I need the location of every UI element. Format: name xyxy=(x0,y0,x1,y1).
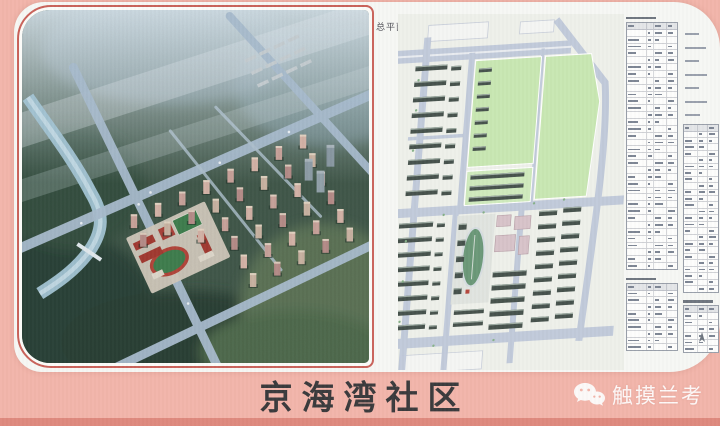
table-cell xyxy=(684,346,698,352)
table-cell xyxy=(627,304,647,310)
table-cell xyxy=(647,160,654,166)
table-cell xyxy=(684,190,698,195)
table-cell xyxy=(654,256,667,262)
table-row xyxy=(627,194,677,201)
table-cell xyxy=(654,181,667,187)
table-cell xyxy=(708,202,718,207)
table-cell xyxy=(627,30,647,36)
table-cell xyxy=(667,71,677,77)
table-row xyxy=(627,331,677,338)
table-cell xyxy=(654,236,667,242)
table-row xyxy=(627,201,677,208)
table-cell xyxy=(684,151,698,156)
table-row xyxy=(627,304,677,311)
table-cell xyxy=(654,331,667,337)
table-row xyxy=(627,78,677,85)
table-cell xyxy=(627,284,647,290)
watermark: 触摸兰考 xyxy=(573,380,704,410)
table-cell xyxy=(627,57,647,63)
table-row xyxy=(627,57,677,64)
table-cell xyxy=(698,346,708,352)
table-cell xyxy=(708,151,718,156)
table-row xyxy=(627,105,677,112)
table-cell xyxy=(647,263,654,269)
table-cell xyxy=(698,157,708,162)
table-cell xyxy=(708,254,718,259)
table-cell xyxy=(708,247,718,252)
table-cell xyxy=(667,215,677,221)
table-cell xyxy=(667,331,677,337)
table-row xyxy=(627,311,677,318)
table-cell xyxy=(684,273,698,278)
table-cell xyxy=(627,181,647,187)
table-cell xyxy=(667,167,677,173)
table-cell xyxy=(647,126,654,132)
table-cell xyxy=(627,194,647,200)
table-cell xyxy=(698,222,708,227)
table-cell xyxy=(684,157,698,162)
planning-board-photo: 总平面图 xyxy=(0,0,720,426)
table-cell xyxy=(627,243,647,249)
table-cell xyxy=(667,140,677,146)
table-row xyxy=(627,318,677,325)
table-caption xyxy=(626,275,678,283)
table-cell xyxy=(684,306,698,312)
table-cell xyxy=(667,188,677,194)
table-cell xyxy=(654,222,667,228)
table-cell xyxy=(647,50,654,56)
table-cell xyxy=(647,64,654,70)
indicator-tables xyxy=(626,14,720,358)
table-row xyxy=(627,291,677,298)
table-row xyxy=(627,256,677,263)
table-cell xyxy=(654,44,667,50)
indicator-table xyxy=(683,124,719,292)
table-cell xyxy=(667,57,677,63)
table-row xyxy=(627,92,677,99)
table-cell xyxy=(684,333,698,339)
table-row xyxy=(627,146,677,153)
table-cell xyxy=(654,140,667,146)
table-cell xyxy=(684,286,698,291)
table-cell xyxy=(627,318,647,324)
table-row xyxy=(627,284,677,291)
table-cell xyxy=(667,174,677,180)
table-cell xyxy=(708,183,718,188)
table-row xyxy=(627,188,677,195)
table-cell xyxy=(684,228,698,233)
table-cell xyxy=(684,170,698,175)
table-cell xyxy=(667,181,677,187)
table-cell xyxy=(647,344,654,350)
table-cell xyxy=(708,320,718,326)
table-row xyxy=(684,346,718,352)
table-cell xyxy=(667,44,677,50)
table-cell xyxy=(667,229,677,235)
table-cell xyxy=(654,201,667,207)
table-row xyxy=(627,167,677,174)
table-cell xyxy=(667,112,677,118)
table-cell xyxy=(667,153,677,159)
table-cell xyxy=(708,132,718,137)
table-cell xyxy=(708,313,718,319)
table-caption xyxy=(626,14,678,22)
table-cell xyxy=(647,181,654,187)
table-cell xyxy=(647,71,654,77)
table-cell xyxy=(667,133,677,139)
table-cell xyxy=(698,209,708,214)
table-cell xyxy=(654,318,667,324)
table-row xyxy=(627,160,677,167)
table-cell xyxy=(647,243,654,249)
table-cell xyxy=(647,119,654,125)
table-cell xyxy=(647,256,654,262)
table-cell xyxy=(654,338,667,344)
table-cell xyxy=(667,208,677,214)
table-cell xyxy=(654,146,667,152)
table-cell xyxy=(627,208,647,214)
table-row xyxy=(684,313,718,320)
table-row xyxy=(627,174,677,181)
table-cell xyxy=(667,243,677,249)
table-cell xyxy=(627,344,647,350)
table-cell xyxy=(627,119,647,125)
aerial-rendering xyxy=(22,10,369,363)
table-cell xyxy=(647,167,654,173)
table-caption xyxy=(683,298,719,306)
table-cell xyxy=(627,188,647,194)
table-cell xyxy=(684,209,698,214)
table-cell xyxy=(684,177,698,182)
aerial-panel xyxy=(17,5,374,368)
table-row xyxy=(627,71,677,78)
table-cell xyxy=(647,229,654,235)
table-row xyxy=(627,324,677,331)
table-cell xyxy=(667,64,677,70)
table-cell xyxy=(684,267,698,272)
table-cell xyxy=(684,144,698,149)
table-cell xyxy=(708,333,718,339)
table-cell xyxy=(627,222,647,228)
table-cell xyxy=(708,170,718,175)
table-cell xyxy=(654,263,667,269)
table-cell xyxy=(698,241,708,246)
table-cell xyxy=(654,249,667,255)
table-cell xyxy=(708,209,718,214)
table-cell xyxy=(647,236,654,242)
table-cell xyxy=(684,254,698,259)
table-cell xyxy=(698,273,708,278)
table-cell xyxy=(698,196,708,201)
footer: 京海湾社区 触摸兰考 xyxy=(0,372,720,418)
table-cell xyxy=(667,344,677,350)
table-cell xyxy=(708,340,718,346)
table-cell xyxy=(698,254,708,259)
table-row xyxy=(627,112,677,119)
table-cell xyxy=(647,304,654,310)
table-row xyxy=(627,119,677,126)
table-cell xyxy=(684,320,698,326)
table-cell xyxy=(654,98,667,104)
table-cell xyxy=(684,260,698,265)
table-cell xyxy=(667,105,677,111)
table-cell xyxy=(627,167,647,173)
table-cell xyxy=(667,236,677,242)
table-cell xyxy=(654,291,667,297)
table-cell xyxy=(627,324,647,330)
table-cell xyxy=(698,177,708,182)
table-cell xyxy=(654,284,667,290)
table-cell xyxy=(698,190,708,195)
table-cell xyxy=(647,140,654,146)
community-title: 京海湾社区 xyxy=(251,371,470,419)
table-cell xyxy=(647,249,654,255)
table-cell xyxy=(667,78,677,84)
table-cell xyxy=(654,194,667,200)
table-cell xyxy=(647,112,654,118)
table-cell xyxy=(627,140,647,146)
legend-notes xyxy=(683,30,719,124)
table-cell xyxy=(654,344,667,350)
table-cell xyxy=(708,286,718,291)
table-cell xyxy=(684,138,698,143)
table-cell xyxy=(627,291,647,297)
display-board: 总平面图 xyxy=(14,2,720,372)
table-cell xyxy=(708,260,718,265)
table-cell xyxy=(698,170,708,175)
table-cell xyxy=(667,92,677,98)
table-cell xyxy=(647,57,654,63)
table-cell xyxy=(698,132,708,137)
table-cell xyxy=(698,228,708,233)
table-cell xyxy=(684,125,698,130)
table-cell xyxy=(654,78,667,84)
table-cell xyxy=(627,133,647,139)
table-cell xyxy=(647,201,654,207)
table-cell xyxy=(654,324,667,330)
table-cell xyxy=(627,37,647,43)
table-cell xyxy=(647,188,654,194)
table-row xyxy=(627,98,677,105)
table-cell xyxy=(698,138,708,143)
table-cell xyxy=(708,267,718,272)
table-cell xyxy=(647,133,654,139)
table-cell xyxy=(647,174,654,180)
table-cell xyxy=(654,208,667,214)
table-row xyxy=(627,181,677,188)
table-cell xyxy=(647,30,654,36)
table-cell xyxy=(667,85,677,91)
table-cell xyxy=(684,215,698,220)
table-cell xyxy=(684,222,698,227)
table-cell xyxy=(708,164,718,169)
table-cell xyxy=(654,133,667,139)
table-cell xyxy=(708,196,718,201)
table-row xyxy=(627,64,677,71)
table-cell xyxy=(647,297,654,303)
photo-bottom-edge xyxy=(0,418,720,426)
table-row xyxy=(627,338,677,345)
indicator-table xyxy=(626,283,678,351)
table-row xyxy=(627,133,677,140)
table-cell xyxy=(647,318,654,324)
table-cell xyxy=(627,338,647,344)
table-cell xyxy=(647,105,654,111)
table-cell xyxy=(647,37,654,43)
table-row xyxy=(627,208,677,215)
table-cell xyxy=(708,235,718,240)
table-cell xyxy=(684,241,698,246)
table-cell xyxy=(654,243,667,249)
table-cell xyxy=(654,23,667,29)
table-cell xyxy=(708,326,718,332)
table-cell xyxy=(667,23,677,29)
table-cell xyxy=(654,64,667,70)
table-cell xyxy=(667,249,677,255)
table-cell xyxy=(647,311,654,317)
table-cell xyxy=(647,98,654,104)
table-cell xyxy=(654,71,667,77)
table-cell xyxy=(627,236,647,242)
table-cell xyxy=(647,44,654,50)
indicator-table-column-a xyxy=(626,14,678,358)
table-cell xyxy=(708,280,718,285)
table-cell xyxy=(698,260,708,265)
table-cell xyxy=(698,320,708,326)
table-cell xyxy=(667,318,677,324)
table-cell xyxy=(627,126,647,132)
table-row xyxy=(684,286,718,291)
table-row xyxy=(627,297,677,304)
table-cell xyxy=(698,144,708,149)
table-cell xyxy=(647,222,654,228)
table-cell xyxy=(684,183,698,188)
table-cell xyxy=(627,23,647,29)
table-cell xyxy=(684,202,698,207)
table-cell xyxy=(667,284,677,290)
table-row xyxy=(627,249,677,256)
table-cell xyxy=(684,313,698,319)
table-cell xyxy=(684,340,698,346)
table-cell xyxy=(654,126,667,132)
table-cell xyxy=(627,98,647,104)
table-cell xyxy=(698,306,708,312)
table-cell xyxy=(684,280,698,285)
table-row xyxy=(627,229,677,236)
table-cell xyxy=(627,50,647,56)
table-cell xyxy=(654,119,667,125)
table-cell xyxy=(684,326,698,332)
table-cell xyxy=(698,164,708,169)
watermark-label: 触摸兰考 xyxy=(612,380,704,410)
table-row xyxy=(684,320,718,327)
table-cell xyxy=(708,273,718,278)
table-row xyxy=(627,236,677,243)
site-plan-drawing xyxy=(398,14,624,370)
table-cell xyxy=(698,286,708,291)
table-row xyxy=(627,85,677,92)
table-cell xyxy=(684,196,698,201)
table-cell xyxy=(654,311,667,317)
table-cell xyxy=(698,235,708,240)
table-cell xyxy=(647,331,654,337)
table-cell xyxy=(708,144,718,149)
table-row xyxy=(627,215,677,222)
table-cell xyxy=(654,188,667,194)
table-cell xyxy=(708,215,718,220)
table-cell xyxy=(627,229,647,235)
table-cell xyxy=(698,183,708,188)
table-cell xyxy=(667,30,677,36)
table-cell xyxy=(698,247,708,252)
table-cell xyxy=(667,311,677,317)
table-cell xyxy=(698,313,708,319)
wechat-icon xyxy=(573,382,605,409)
table-cell xyxy=(627,153,647,159)
table-row xyxy=(627,222,677,229)
table-cell xyxy=(667,291,677,297)
table-cell xyxy=(654,167,667,173)
table-cell xyxy=(627,146,647,152)
table-row xyxy=(627,37,677,44)
table-cell xyxy=(654,37,667,43)
table-cell xyxy=(627,249,647,255)
table-row xyxy=(627,126,677,133)
table-row xyxy=(627,44,677,51)
table-cell xyxy=(654,30,667,36)
table-cell xyxy=(667,222,677,228)
table-cell xyxy=(698,151,708,156)
table-cell xyxy=(647,208,654,214)
table-row xyxy=(627,30,677,37)
table-row xyxy=(627,243,677,250)
table-cell xyxy=(708,228,718,233)
table-row xyxy=(627,23,677,30)
table-cell xyxy=(647,194,654,200)
table-cell xyxy=(647,146,654,152)
table-cell xyxy=(654,85,667,91)
table-cell xyxy=(647,291,654,297)
table-cell xyxy=(708,306,718,312)
table-cell xyxy=(654,160,667,166)
table-cell xyxy=(667,263,677,269)
table-cell xyxy=(627,201,647,207)
table-cell xyxy=(667,304,677,310)
table-cell xyxy=(627,174,647,180)
table-row xyxy=(627,140,677,147)
table-cell xyxy=(654,112,667,118)
table-cell xyxy=(708,241,718,246)
table-cell xyxy=(627,105,647,111)
table-cell xyxy=(667,194,677,200)
table-cell xyxy=(647,153,654,159)
table-cell xyxy=(708,157,718,162)
table-cell xyxy=(647,85,654,91)
table-cell xyxy=(627,85,647,91)
table-cell xyxy=(654,57,667,63)
table-row xyxy=(627,50,677,57)
table-cell xyxy=(627,112,647,118)
indicator-table xyxy=(683,305,719,353)
table-cell xyxy=(627,311,647,317)
table-cell xyxy=(667,160,677,166)
table-cell xyxy=(654,297,667,303)
table-cell xyxy=(667,256,677,262)
table-row xyxy=(627,263,677,269)
table-cell xyxy=(647,215,654,221)
table-cell xyxy=(654,215,667,221)
table-cell xyxy=(654,174,667,180)
